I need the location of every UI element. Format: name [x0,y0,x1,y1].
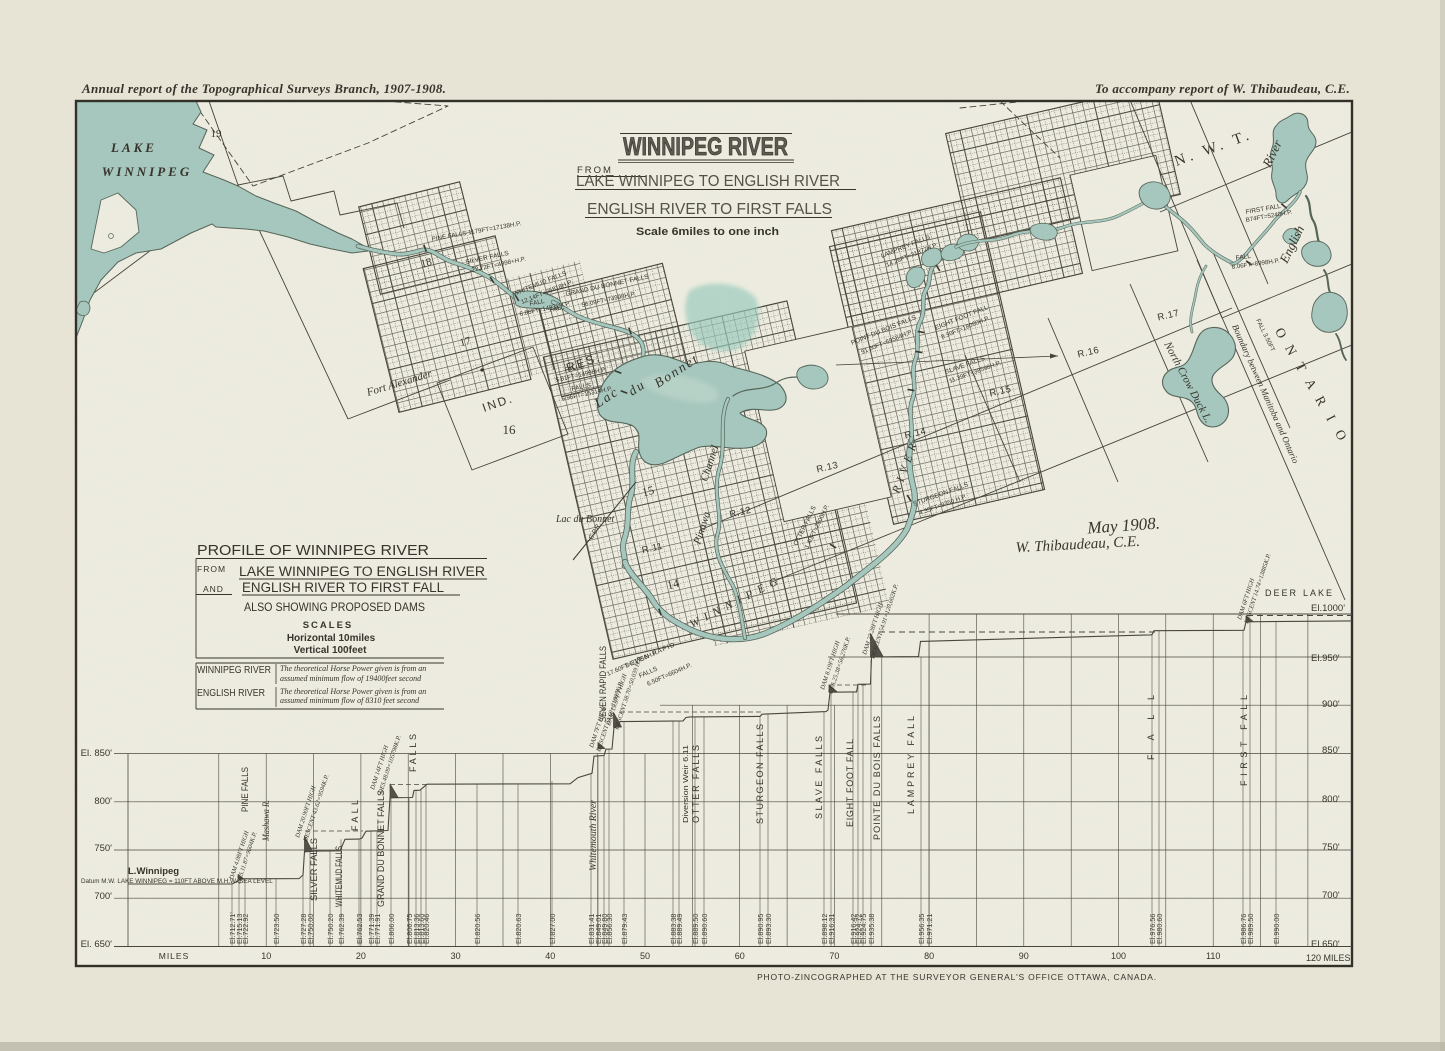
svg-text:El.771.91: El.771.91 [373,914,382,944]
svg-text:El.971.21: El.971.21 [925,914,934,944]
svg-text:10: 10 [261,951,271,961]
svg-text:750': 750' [1322,842,1340,853]
svg-text:Datum M.W. LAKE WINNIPEG = 110: Datum M.W. LAKE WINNIPEG = 110FT ABOVE M… [81,878,273,885]
svg-text:WINNIPEG: WINNIPEG [102,164,192,179]
svg-text:PROFILE OF WINNIPEG RIVER: PROFILE OF WINNIPEG RIVER [197,543,429,559]
svg-text:ENGLISH RIVER TO FIRST FALLS: ENGLISH RIVER TO FIRST FALLS [587,201,832,218]
svg-text:20: 20 [356,951,366,961]
svg-text:El.827.00: El.827.00 [548,914,557,944]
svg-text:El.723.50: El.723.50 [272,914,281,944]
svg-text:L.Winnipeg: L.Winnipeg [128,866,179,877]
svg-text:Horizontal 10miles: Horizontal 10miles [287,633,376,644]
svg-text:SILVER FALLS: SILVER FALLS [309,838,319,901]
svg-text:WINNIPEG RIVER: WINNIPEG RIVER [197,665,271,676]
svg-text:El.820.46: El.820.46 [422,914,431,944]
svg-text:80: 80 [924,951,934,961]
svg-text:SLAVE FALLS: SLAVE FALLS [814,736,824,819]
svg-text:60: 60 [735,951,745,961]
svg-text:700': 700' [1322,890,1340,901]
svg-text:19: 19 [211,128,223,140]
svg-text:El.856.30: El.856.30 [605,914,614,944]
svg-text:El.650': El.650' [1311,939,1340,950]
svg-text:PHOTO-ZINCOGRAPHED AT THE SURV: PHOTO-ZINCOGRAPHED AT THE SURVEYOR GENER… [757,972,1157,982]
svg-text:SCALES: SCALES [303,620,354,631]
svg-text:800': 800' [94,796,112,807]
svg-text:El.990.00: El.990.00 [1272,914,1281,944]
svg-text:70: 70 [829,951,839,961]
svg-text:16: 16 [503,422,517,437]
svg-text:El.950': El.950' [1311,653,1340,664]
svg-text:El.989.50: El.989.50 [1246,914,1255,944]
svg-text:El.916.31: El.916.31 [827,914,836,944]
svg-text:800': 800' [1322,794,1340,805]
svg-text:WINNIPEG RIVER: WINNIPEG RIVER [623,133,788,161]
svg-text:DEER: DEER [1265,588,1298,598]
svg-text:EIGHT FOOT FALL: EIGHT FOOT FALL [845,739,855,827]
svg-text:Scale 6miles to one inch: Scale 6miles to one inch [636,226,779,238]
svg-text:To accompany report of W. Thib: To accompany report of W. Thibaudeau, C.… [1095,81,1350,96]
svg-text:700': 700' [94,891,112,902]
svg-text:WHITEMUD FALLS: WHITEMUD FALLS [334,846,344,907]
svg-text:ALSO SHOWING PROPOSED DAMS: ALSO SHOWING PROPOSED DAMS [244,602,425,614]
svg-text:LAKE: LAKE [110,140,157,155]
svg-text:El.893.30: El.893.30 [764,914,773,944]
svg-text:FROM: FROM [197,564,226,574]
svg-text:100: 100 [1111,951,1126,961]
svg-text:AND: AND [203,584,224,594]
svg-text:50: 50 [640,951,650,961]
svg-text:LAKE WINNIPEG TO ENGLISH RIVER: LAKE WINNIPEG TO ENGLISH RIVER [576,173,840,190]
svg-text:110: 110 [1206,951,1220,961]
svg-text:ENGLISH RIVER: ENGLISH RIVER [197,688,265,699]
svg-text:El. 650': El. 650' [81,939,113,950]
svg-text:Vertical 100feet: Vertical 100feet [294,645,367,656]
svg-text:El.750.20: El.750.20 [326,914,335,944]
svg-text:LAKE WINNIPEG TO ENGLISH RIVER: LAKE WINNIPEG TO ENGLISH RIVER [239,564,485,579]
svg-text:Diversion Weir 6.11: Diversion Weir 6.11 [681,745,690,823]
svg-text:Whitemouth River: Whitemouth River [588,799,598,871]
svg-text:El.820.63: El.820.63 [514,914,523,944]
svg-text:40: 40 [545,951,555,961]
svg-text:850': 850' [1322,745,1340,756]
svg-text:POINTE DU BOIS FALLS: POINTE DU BOIS FALLS [872,716,882,840]
svg-text:GRAND DU BONNET FALLS: GRAND DU BONNET FALLS [376,790,386,907]
svg-text:El.935.38: El.935.38 [867,914,876,944]
svg-text:ENGLISH RIVER TO FIRST FALL: ENGLISH RIVER TO FIRST FALL [242,580,444,595]
svg-text:120 MILES: 120 MILES [1306,953,1351,963]
svg-text:El.762.53: El.762.53 [355,914,364,944]
svg-text:Annual report of the Topograph: Annual report of the Topographical Surve… [81,81,446,96]
svg-text:El.762.39: El.762.39 [337,914,346,944]
svg-text:El.889.50: El.889.50 [691,914,700,944]
svg-text:El.890.60: El.890.60 [700,914,709,944]
svg-text:30: 30 [451,951,461,961]
svg-text:assumed minimum flow of 8310 f: assumed minimum flow of 8310 feet second [280,696,420,705]
svg-text:The theoretical Horse Power gi: The theoretical Horse Power given is fro… [280,664,426,673]
svg-text:El.806.00: El.806.00 [387,914,396,944]
svg-text:LAKE: LAKE [1303,588,1334,598]
svg-text:assumed minimum flow of 19400f: assumed minimum flow of 19400feet second [280,674,422,683]
svg-text:El.879.43: El.879.43 [620,914,629,944]
svg-text:El.1000': El.1000' [1311,603,1345,614]
svg-text:El.889.49: El.889.49 [675,914,684,944]
svg-text:El.980.60: El.980.60 [1155,914,1164,944]
svg-text:El. 850': El. 850' [81,748,113,759]
svg-text:PINE FALLS: PINE FALLS [240,767,250,812]
svg-text:El.722.92: El.722.92 [241,914,250,944]
svg-text:El.820.56: El.820.56 [473,914,482,944]
svg-text:90: 90 [1019,951,1029,961]
svg-text:El.750.00: El.750.00 [306,914,315,944]
svg-text:STURGEON FALLS: STURGEON FALLS [755,724,765,824]
svg-text:OTTER FALLS: OTTER FALLS [691,745,701,823]
svg-text:MILES: MILES [159,951,190,961]
svg-text:The theoretical Horse Power gi: The theoretical Horse Power given is fro… [280,687,426,696]
svg-text:900': 900' [1322,699,1340,710]
svg-text:Mashawa R.: Mashawa R. [261,800,271,842]
svg-text:750': 750' [94,843,112,854]
